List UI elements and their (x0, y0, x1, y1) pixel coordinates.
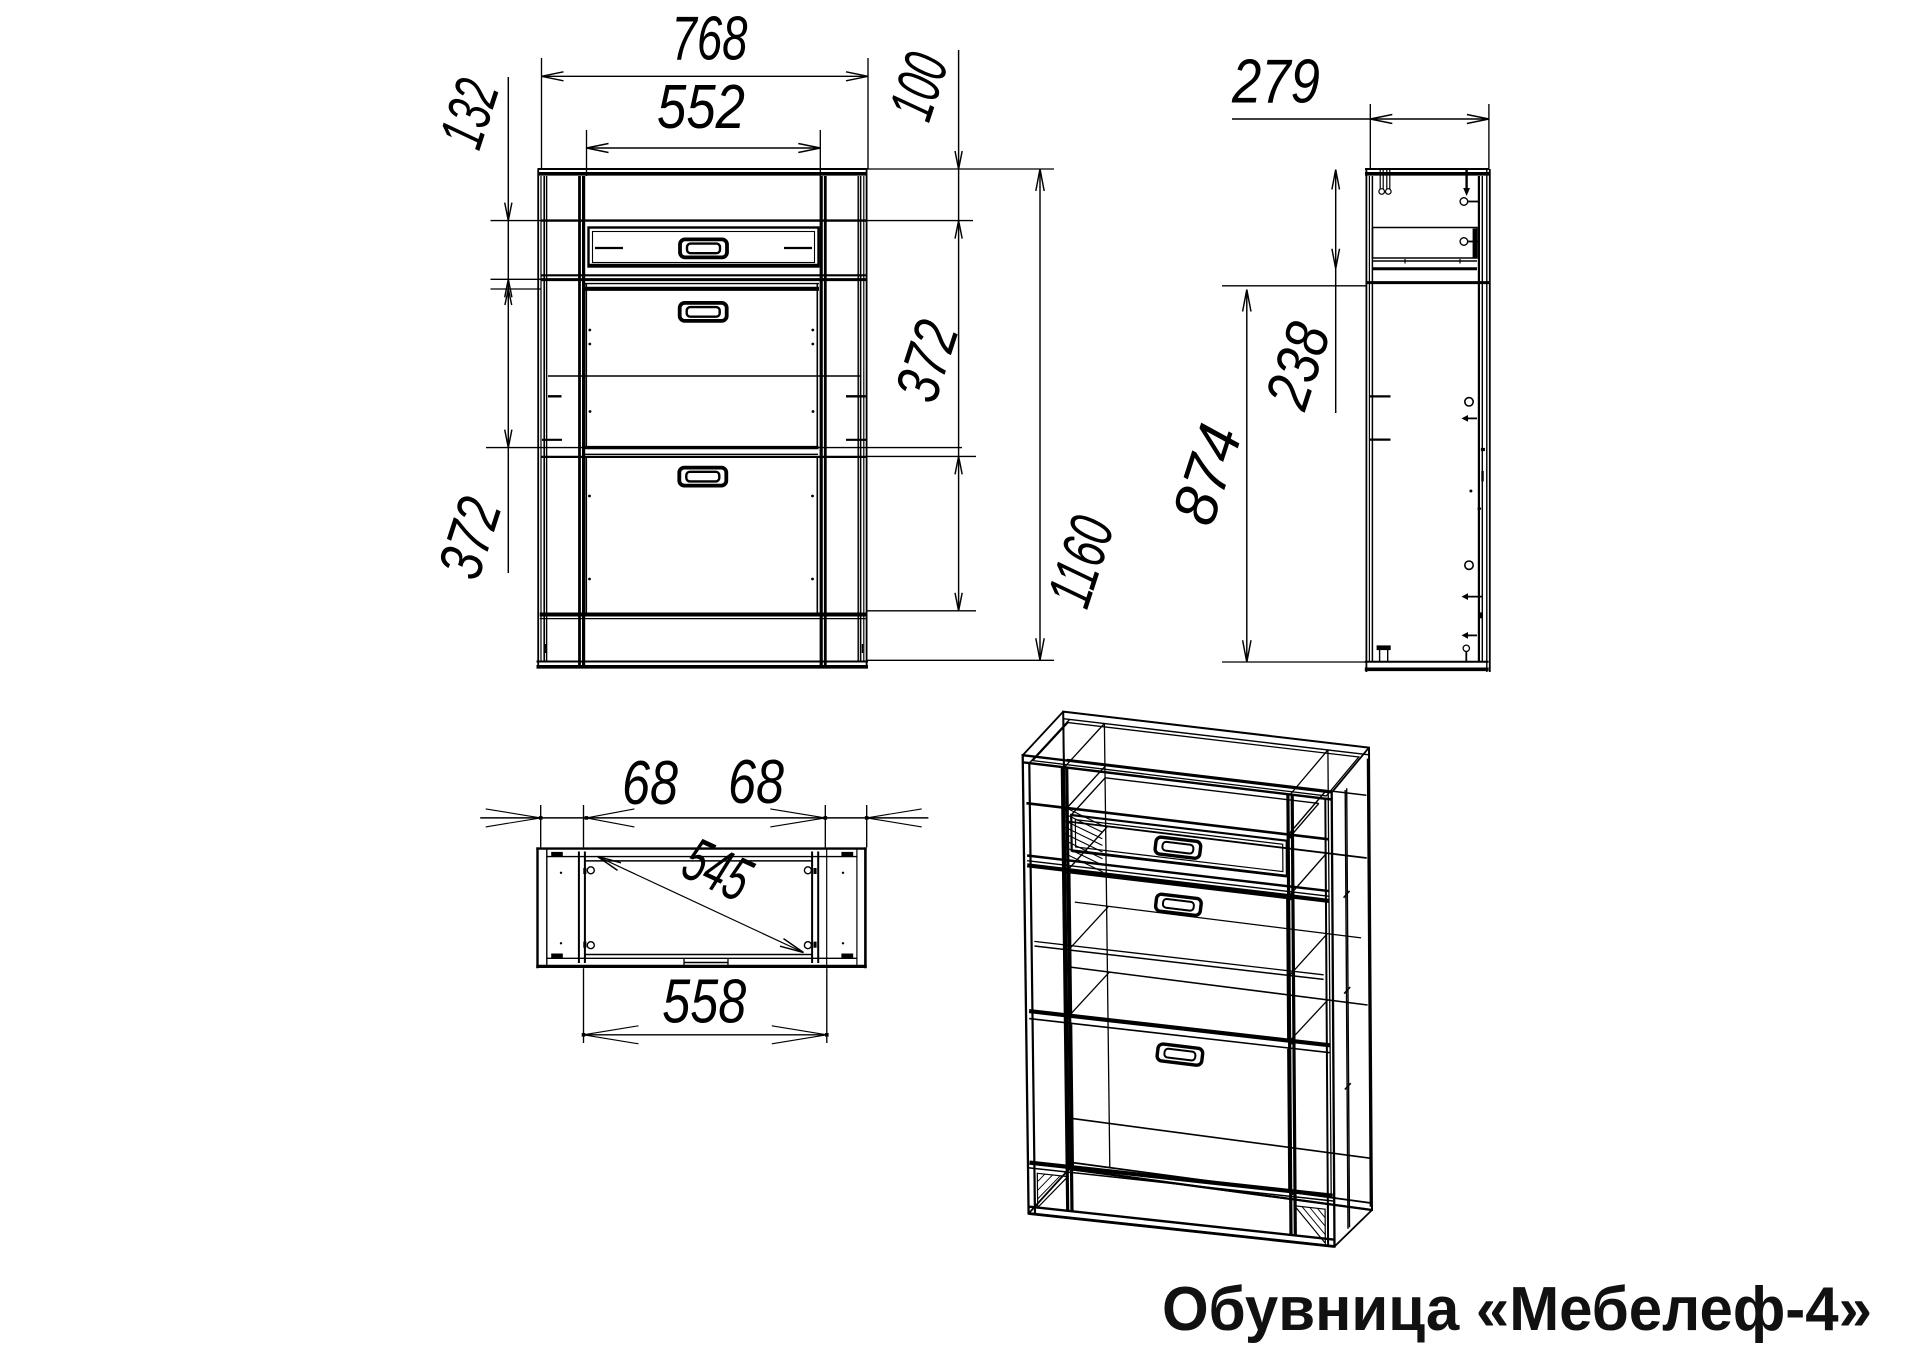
svg-text:68: 68 (622, 749, 678, 818)
svg-text:Обувница «Мебелеф-4»: Обувница «Мебелеф-4» (1162, 1275, 1872, 1344)
svg-text:558: 558 (662, 967, 746, 1036)
svg-text:768: 768 (672, 4, 748, 73)
svg-text:68: 68 (728, 748, 784, 817)
svg-text:552: 552 (657, 73, 745, 142)
svg-text:279: 279 (1231, 47, 1320, 116)
